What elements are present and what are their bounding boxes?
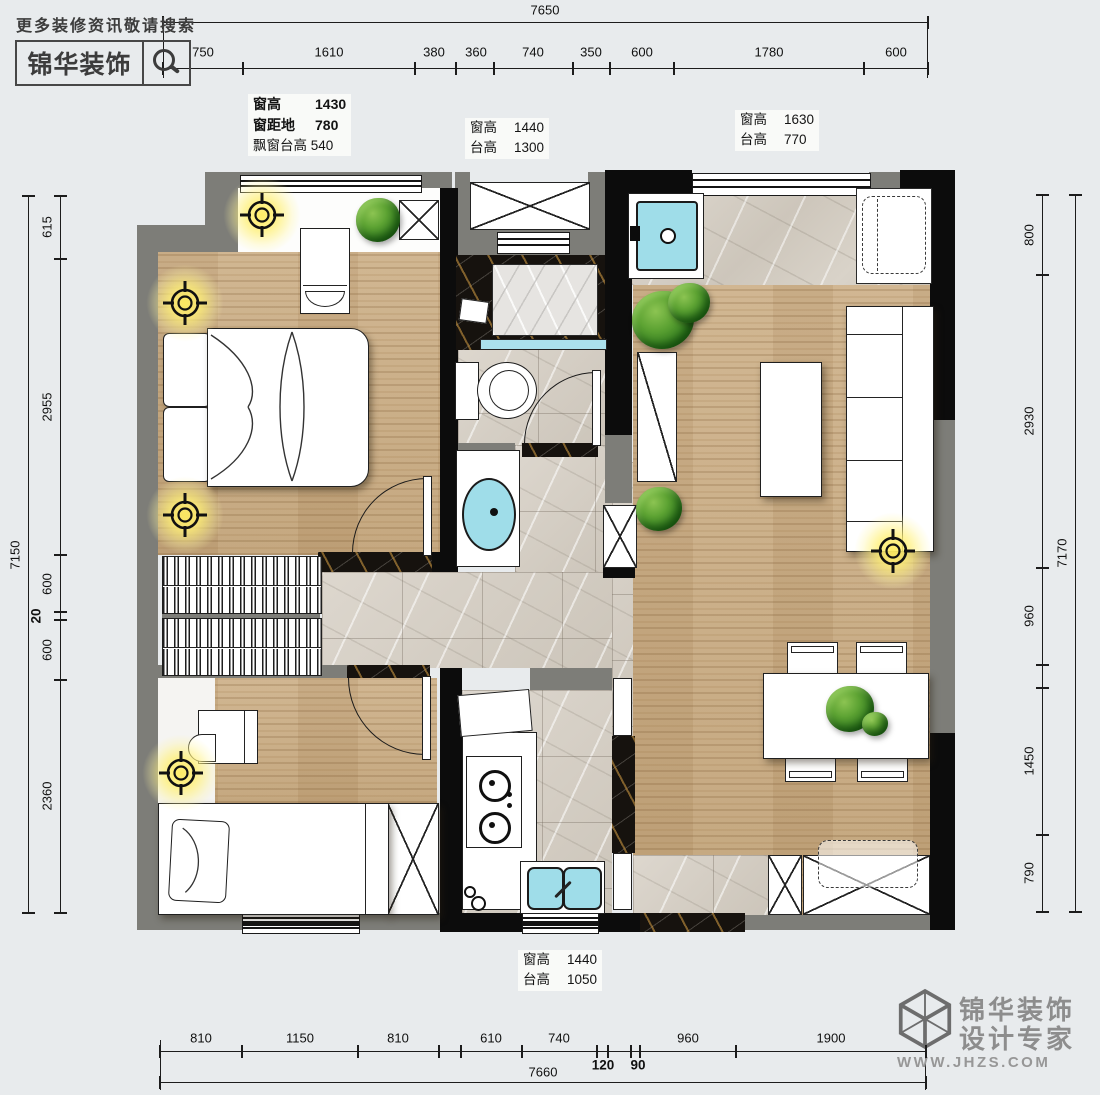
- dim-tick: [925, 1045, 926, 1058]
- bedroom2-door-leaf: [422, 676, 431, 760]
- brand-box: 锦华装饰: [15, 40, 191, 86]
- dim-line-right: [1042, 195, 1043, 912]
- dim-label: 740: [548, 1032, 570, 1045]
- dim-label: 610: [480, 1032, 502, 1045]
- dim-tick: [521, 1045, 522, 1058]
- dim-label: 2930: [1023, 407, 1036, 436]
- threshold-stub: [432, 552, 458, 572]
- washer-drum: [660, 228, 676, 244]
- annotation-balcony-window: 窗高1630 台高770: [735, 110, 819, 151]
- dim-label: 960: [677, 1032, 699, 1045]
- burner-1: [479, 770, 511, 802]
- foyer-cabinet-counter: [818, 840, 918, 888]
- ceiling-light-icon: [162, 492, 208, 538]
- shower-tray: [492, 264, 598, 336]
- dim-tick: [438, 1045, 439, 1058]
- ceiling-light-icon: [239, 192, 285, 238]
- annotation-kitchen-window: 窗高1440 台高1050: [518, 950, 602, 991]
- dim-label: 360: [465, 46, 487, 59]
- dim-label: 1780: [755, 46, 784, 59]
- annotation-value: 1300: [514, 138, 544, 158]
- dim-tick: [1036, 567, 1049, 568]
- search-icon-cell: [142, 42, 189, 84]
- dim-tick: [925, 1076, 926, 1089]
- dim-line-left-total: [28, 196, 29, 913]
- annotation-value: 1630: [784, 110, 814, 130]
- bathroom-window: [497, 232, 570, 254]
- shower-fixture: [459, 298, 490, 324]
- dim-label-total: 7650: [531, 4, 560, 17]
- dim-tick: [1036, 834, 1049, 835]
- master-bed-pillow-2: [163, 407, 211, 482]
- dim-label: 1900: [817, 1032, 846, 1045]
- kitchen-wall-top: [530, 668, 612, 690]
- promo-text: 更多装修资讯敬请搜索: [16, 12, 196, 36]
- ceiling-light-master-2: [146, 476, 224, 554]
- dim-label: 615: [41, 216, 54, 238]
- dim-label: 600: [631, 46, 653, 59]
- dim-tick: [54, 912, 67, 913]
- footer-url: WWW.JHZS.COM: [897, 1054, 1050, 1071]
- foyer-cabinet-small: [768, 855, 802, 915]
- kitchen-door-leaf: [457, 689, 532, 737]
- annotation-row: 台高1050: [518, 970, 602, 990]
- dim-tick: [54, 554, 67, 555]
- dim-label: 2360: [41, 782, 54, 811]
- annotation-value: 1440: [514, 118, 544, 138]
- kitchen-sliding-door-1: [613, 678, 632, 736]
- master-door-threshold: [318, 552, 432, 572]
- toilet-bowl-inner: [489, 370, 529, 411]
- coffee-table: [760, 362, 822, 497]
- dim-tick: [159, 1076, 160, 1089]
- dim-label: 20: [29, 608, 43, 623]
- master-door-leaf: [423, 476, 432, 556]
- future-washer-dashed: [862, 196, 926, 274]
- dim-tick: [22, 912, 35, 913]
- shaft-wall-right: [588, 172, 605, 228]
- ceiling-light-icon: [158, 750, 204, 796]
- dim-tick: [357, 1045, 358, 1058]
- dim-tick: [1036, 194, 1049, 195]
- stove-knob-1: [507, 792, 512, 797]
- cube-logo-icon: [897, 988, 953, 1050]
- dim-tick: [455, 62, 456, 75]
- dim-tick: [630, 1045, 631, 1058]
- bay-desk-chair: [300, 228, 350, 314]
- annotation-value: 1430: [315, 94, 346, 115]
- annotation-bay-window: 窗高1430 窗距地780 飘窗台高 540: [248, 94, 351, 156]
- sink-basin-1: [527, 867, 564, 910]
- dim-tick: [735, 1045, 736, 1058]
- annotation-row: 窗高1440: [465, 118, 549, 138]
- toilet-tank: [455, 362, 479, 420]
- annotation-row: 窗高1430: [248, 94, 351, 115]
- hallway-floor-2: [515, 445, 612, 572]
- hallway-floor: [322, 572, 612, 668]
- bedroom2-cabinet: [387, 803, 439, 915]
- ceiling-light-bedroom2: [142, 734, 220, 812]
- dim-tick: [22, 195, 35, 196]
- dim-label: 90: [630, 1058, 645, 1072]
- dim-tick: [242, 62, 243, 75]
- bathroom-door-leaf: [592, 370, 601, 446]
- bed-sheet-sketch: [208, 329, 368, 486]
- wash-basin: [462, 478, 516, 551]
- annotation-bath-window: 窗高1440 台高1300: [465, 118, 549, 159]
- wardrobe-master: [162, 556, 322, 614]
- dim-tick: [54, 611, 67, 612]
- bedroom2-window: [242, 913, 360, 934]
- floorplan-canvas: 750 1610 380 360 740 350 600 1780 600 76…: [0, 0, 1100, 1095]
- exterior-wall-bottom-right: [745, 915, 930, 930]
- dim-label: 120: [592, 1058, 615, 1072]
- kitchen-window: [522, 913, 599, 934]
- annotation-key: 台高: [740, 130, 784, 150]
- burner-2: [479, 812, 511, 844]
- footer-logo: 锦华装饰 设计专家 WWW.JHZS.COM: [897, 988, 1082, 1080]
- dim-tick: [927, 16, 928, 29]
- annotation-row: 窗高1440: [518, 950, 602, 970]
- annotation-key: 台高: [470, 138, 514, 158]
- dim-tick: [673, 62, 674, 75]
- dim-label-total: 7660: [529, 1066, 558, 1079]
- entry-foyer-floor: [633, 855, 768, 915]
- burner-2-center: [489, 822, 495, 828]
- dim-label: 1150: [286, 1032, 314, 1045]
- ceiling-light-icon: [162, 280, 208, 326]
- dim-tick: [1036, 687, 1049, 688]
- bedroom2-door-threshold: [347, 665, 430, 678]
- dim-label: 960: [1023, 605, 1036, 627]
- bay-corner-cabinet: [399, 200, 439, 240]
- dim-tick: [54, 679, 67, 680]
- hall-column: [603, 505, 637, 568]
- single-bed-pillow: [168, 819, 230, 904]
- dim-label: 600: [41, 639, 54, 661]
- exterior-wall-bottom-left-a: [137, 913, 242, 930]
- dim-label-total: 7170: [1056, 539, 1069, 568]
- pillar-hall: [605, 435, 632, 503]
- annotation-key: 窗距地: [253, 115, 315, 136]
- dim-label: 600: [41, 573, 54, 595]
- dim-tick: [596, 1045, 597, 1058]
- dim-tick: [493, 62, 494, 75]
- dim-label: 1610: [315, 46, 344, 59]
- dim-line-right-total: [1075, 195, 1076, 912]
- shear-wall-bottom-a: [440, 913, 522, 932]
- dim-tick: [54, 195, 67, 196]
- gas-valve-2: [471, 896, 486, 911]
- annotation-value: 780: [315, 115, 338, 136]
- burner-1-center: [489, 780, 495, 786]
- ceiling-light-bay: [223, 176, 301, 254]
- dim-label: 810: [190, 1032, 212, 1045]
- dim-line-top: [163, 68, 928, 69]
- bathroom-door-threshold: [522, 443, 598, 457]
- annotation-row: 台高770: [735, 130, 819, 150]
- dim-label: 380: [423, 46, 445, 59]
- dim-label: 810: [387, 1032, 409, 1045]
- brand-name: 锦华装饰: [17, 42, 142, 84]
- kitchen-sliding-door-2: [613, 853, 632, 910]
- dim-label-total: 7150: [9, 541, 22, 570]
- annotation-key: 窗高: [740, 110, 784, 130]
- dim-label: 1450: [1023, 747, 1036, 776]
- kitchen-marble-wall: [612, 736, 635, 853]
- master-bed-pillow-1: [163, 333, 211, 407]
- dashed-line: [877, 199, 878, 271]
- annotation-row: 台高1300: [465, 138, 549, 158]
- annotation-value: 1050: [567, 970, 597, 990]
- annotation-value: 770: [784, 130, 807, 150]
- dim-tick: [927, 62, 928, 75]
- balcony-window: [692, 173, 871, 196]
- master-bed: [207, 328, 369, 487]
- entry-threshold: [640, 913, 745, 932]
- washer-door-hinge: [630, 226, 640, 241]
- shower-glass: [480, 339, 607, 350]
- dim-line-bottom-total: [160, 1082, 926, 1083]
- dim-tick: [241, 1045, 242, 1058]
- dim-line-top-total: [163, 22, 928, 23]
- dim-line-bottom: [160, 1051, 926, 1052]
- annotation-key: 窗高: [523, 950, 567, 970]
- wardrobe-bedroom2: [162, 618, 322, 676]
- footer-brand-line2: 设计专家: [959, 1019, 1075, 1056]
- annotation-key: 飘窗台高: [253, 136, 307, 156]
- dim-label: 600: [885, 46, 907, 59]
- dim-tick: [607, 1045, 608, 1058]
- sink-basin-2: [563, 867, 602, 910]
- dim-tick: [639, 1045, 640, 1058]
- search-icon: [153, 49, 175, 71]
- dim-tick: [863, 62, 864, 75]
- annotation-value: 540: [311, 136, 334, 156]
- dim-tick: [1069, 911, 1082, 912]
- wall-step-topleft: [137, 225, 212, 252]
- tv-cabinet: [637, 352, 677, 482]
- dim-label: 750: [192, 46, 214, 59]
- dim-tick: [1069, 194, 1082, 195]
- stove-knob-2: [507, 803, 512, 808]
- annotation-value: 1440: [567, 950, 597, 970]
- shear-wall-bottom-b: [597, 913, 640, 932]
- dim-label: 800: [1023, 224, 1036, 246]
- exterior-wall-right-bottom: [930, 733, 955, 930]
- dim-tick: [1036, 274, 1049, 275]
- dim-tick: [1036, 911, 1049, 912]
- dim-label: 2955: [41, 393, 54, 422]
- dim-label: 740: [522, 46, 544, 59]
- dim-tick: [1036, 664, 1049, 665]
- dim-tick: [54, 258, 67, 259]
- dim-tick: [159, 1045, 160, 1058]
- annotation-key: 窗高: [470, 118, 514, 138]
- dim-tick: [414, 62, 415, 75]
- annotation-row: 飘窗台高 540: [248, 136, 351, 156]
- dim-label: 790: [1023, 862, 1036, 884]
- basin-faucet: [490, 508, 498, 516]
- dim-label: 350: [580, 46, 602, 59]
- dim-tick: [572, 62, 573, 75]
- pillow-sketch: [169, 820, 229, 903]
- annotation-key: 台高: [523, 970, 567, 990]
- exterior-wall-bottom-left-b: [358, 913, 440, 930]
- annotation-key: 窗高: [253, 94, 315, 115]
- vent-shaft: [470, 182, 590, 230]
- dim-tick: [609, 62, 610, 75]
- dim-tick: [54, 619, 67, 620]
- annotation-row: 窗距地780: [248, 115, 351, 136]
- dim-tick: [460, 1045, 461, 1058]
- ceiling-light-dining: [854, 512, 932, 590]
- ceiling-light-master-1: [146, 264, 224, 342]
- annotation-row: 窗高1630: [735, 110, 819, 130]
- ceiling-light-icon: [870, 528, 916, 574]
